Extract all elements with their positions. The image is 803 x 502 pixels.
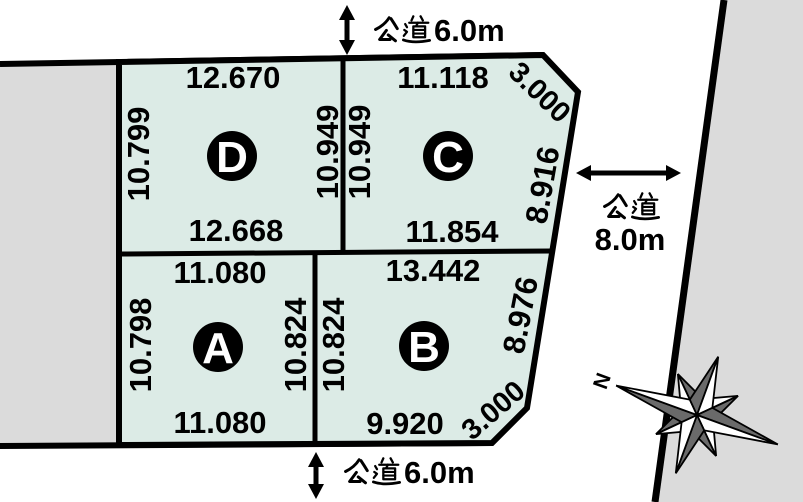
plot-c-badge-label: C xyxy=(432,133,464,182)
plot-a-left-dimension: 10.798 xyxy=(123,298,158,393)
plot-a-right-dimension: 10.824 xyxy=(278,297,313,393)
plot-a-top-dimension: 11.080 xyxy=(173,255,266,290)
plot-b-left-dimension: 10.824 xyxy=(316,297,351,393)
plot-b-top-dimension: 13.442 xyxy=(386,253,481,288)
top-road-width-text: 6.0m xyxy=(434,13,505,48)
bottom-road-width-text: 6.0m xyxy=(404,455,475,490)
plot-d-top-dimension: 12.670 xyxy=(186,60,281,95)
divider-row xyxy=(119,251,552,254)
plot-a-badge-label: A xyxy=(202,324,234,373)
plot-d-badge-label: D xyxy=(216,133,248,182)
right-road-width-text: 8.0m xyxy=(595,222,666,257)
plot-a-bottom-dimension: 11.080 xyxy=(173,405,266,440)
site-plan: 12.670 12.668 10.799 10.949 D 11.118 11.… xyxy=(0,0,803,502)
adjacent-parcel-left xyxy=(0,62,119,446)
plot-c-bottom-dimension: 11.854 xyxy=(405,214,499,249)
site-plan-drawing: 12.670 12.668 10.799 10.949 D 11.118 11.… xyxy=(0,0,803,502)
plot-c-top-dimension: 11.118 xyxy=(397,60,488,95)
plot-d-left-dimension: 10.799 xyxy=(121,107,156,202)
plot-d-bottom-dimension: 12.668 xyxy=(189,213,284,248)
plot-b-bottom-dimension: 9.920 xyxy=(366,406,444,441)
plot-d-right-dimension: 10.949 xyxy=(310,105,345,200)
plot-c-left-dimension: 10.949 xyxy=(342,105,377,200)
plot-b-badge-label: B xyxy=(408,323,440,372)
